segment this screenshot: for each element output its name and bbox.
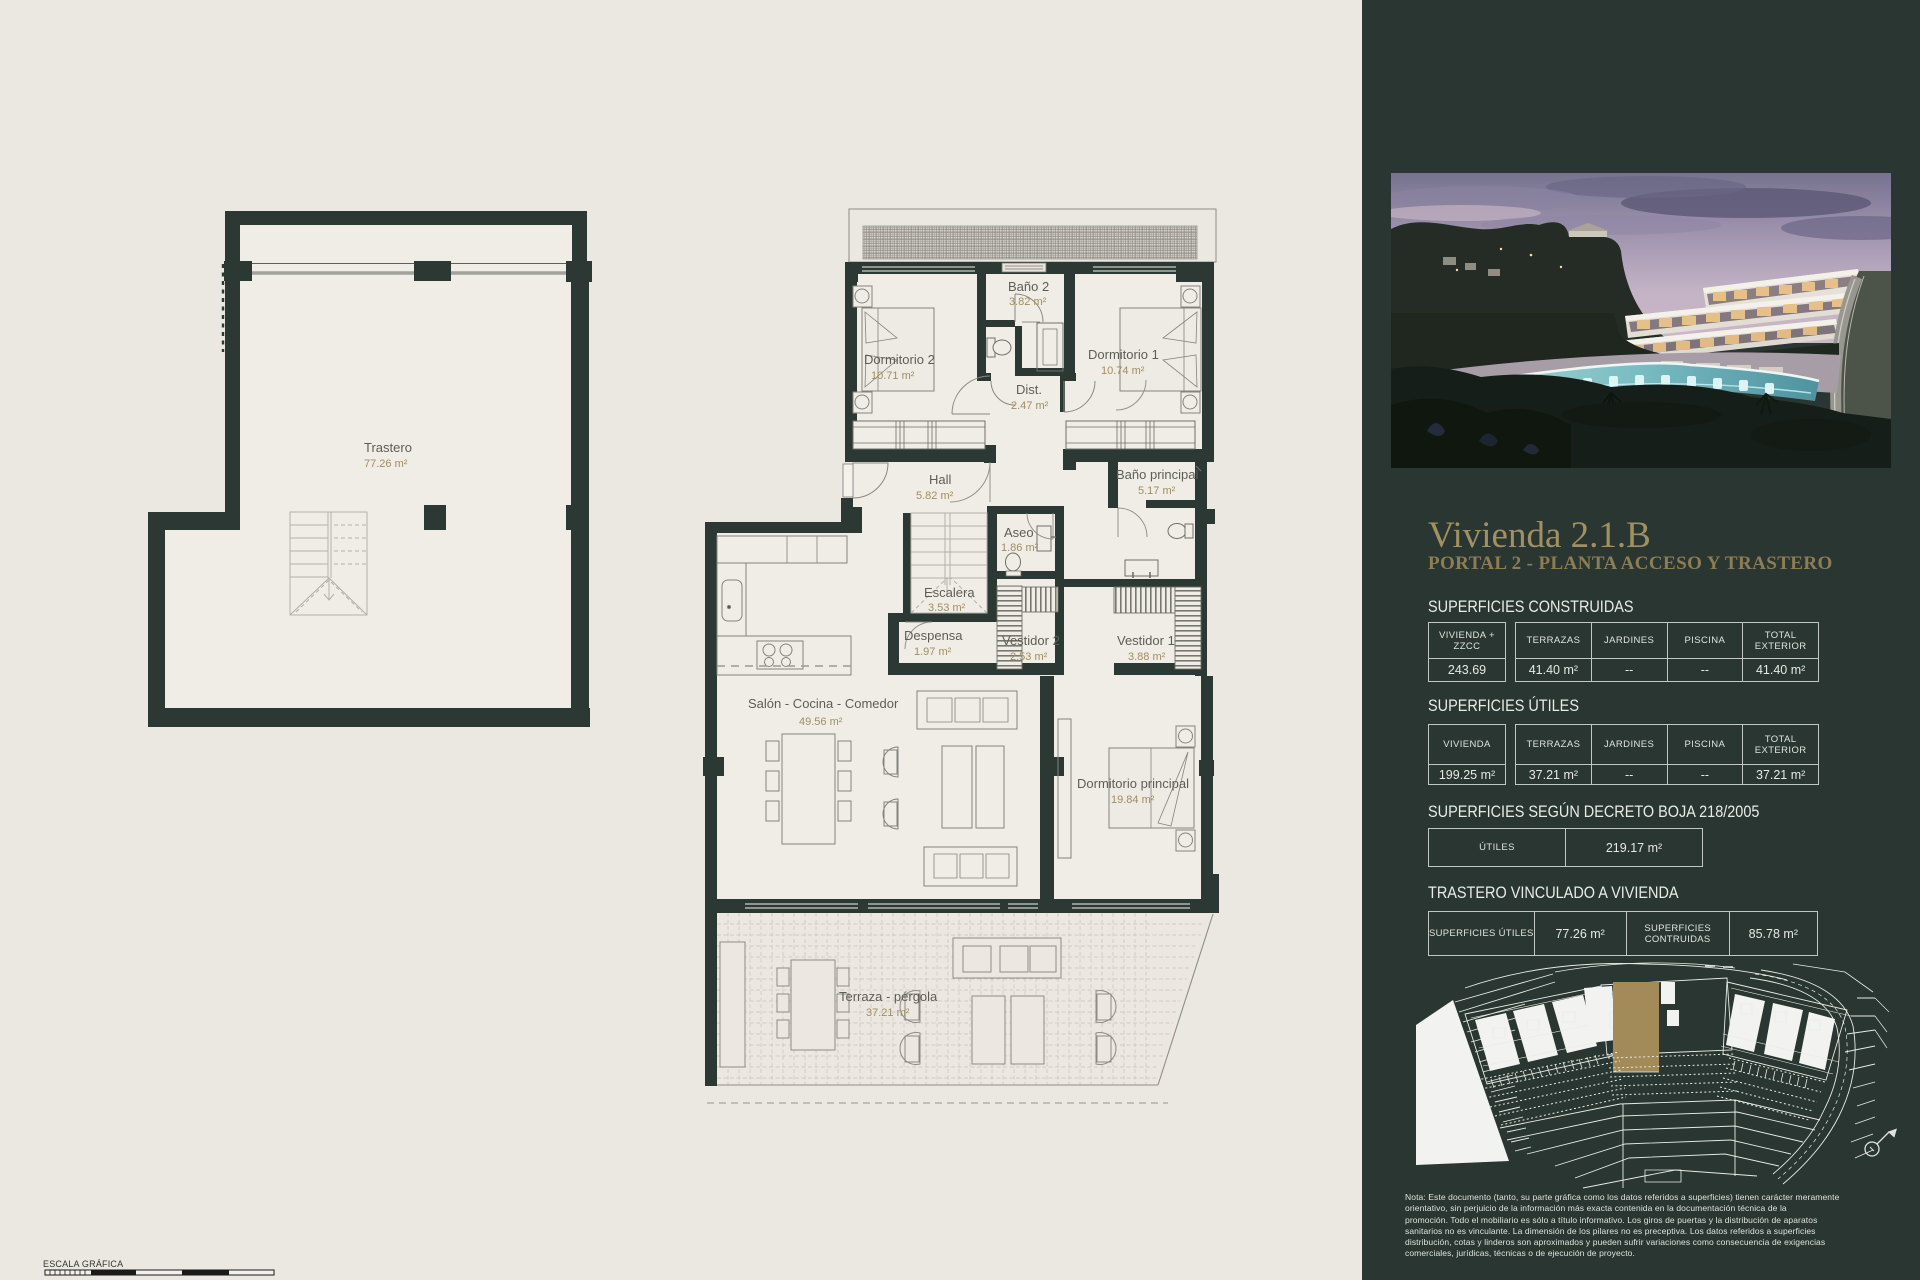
svg-text:Despensa: Despensa xyxy=(904,628,963,643)
svg-text:Aseo: Aseo xyxy=(1004,525,1034,540)
svg-text:10.71 m²: 10.71 m² xyxy=(871,370,915,382)
svg-text:1.86 m²: 1.86 m² xyxy=(1001,542,1039,554)
svg-text:1.97 m²: 1.97 m² xyxy=(914,646,952,658)
svg-text:Baño 2: Baño 2 xyxy=(1008,279,1049,294)
svg-text:Vestidor 2: Vestidor 2 xyxy=(1002,633,1060,648)
svg-text:Hall: Hall xyxy=(929,472,952,487)
svg-text:77.26 m²: 77.26 m² xyxy=(364,458,408,470)
svg-text:Vestidor 1: Vestidor 1 xyxy=(1117,633,1175,648)
svg-text:Dormitorio principal: Dormitorio principal xyxy=(1077,776,1189,791)
svg-text:Baño principal: Baño principal xyxy=(1116,467,1198,482)
svg-text:Terraza - pérgola: Terraza - pérgola xyxy=(839,989,938,1004)
svg-text:3.88 m²: 3.88 m² xyxy=(1128,651,1166,663)
svg-text:5.82 m²: 5.82 m² xyxy=(916,490,954,502)
svg-text:19.84 m²: 19.84 m² xyxy=(1111,794,1155,806)
svg-text:49.56 m²: 49.56 m² xyxy=(799,716,843,728)
svg-text:Escalera: Escalera xyxy=(924,585,975,600)
svg-text:10.74 m²: 10.74 m² xyxy=(1101,365,1145,377)
svg-text:Trastero: Trastero xyxy=(364,440,412,455)
svg-text:3.53 m²: 3.53 m² xyxy=(928,602,966,614)
svg-text:Dormitorio 2: Dormitorio 2 xyxy=(864,352,935,367)
svg-text:2.47 m²: 2.47 m² xyxy=(1011,400,1049,412)
svg-text:Salón - Cocina - Comedor: Salón - Cocina - Comedor xyxy=(748,696,899,711)
svg-text:Dormitorio 1: Dormitorio 1 xyxy=(1088,347,1159,362)
svg-text:ESCALA GRÁFICA: ESCALA GRÁFICA xyxy=(43,1259,123,1269)
svg-text:Dist.: Dist. xyxy=(1016,382,1042,397)
svg-text:2.53 m²: 2.53 m² xyxy=(1010,651,1048,663)
svg-text:3.82 m²: 3.82 m² xyxy=(1009,296,1047,308)
svg-text:37.21 m²: 37.21 m² xyxy=(866,1007,910,1019)
svg-text:5.17 m²: 5.17 m² xyxy=(1138,485,1176,497)
